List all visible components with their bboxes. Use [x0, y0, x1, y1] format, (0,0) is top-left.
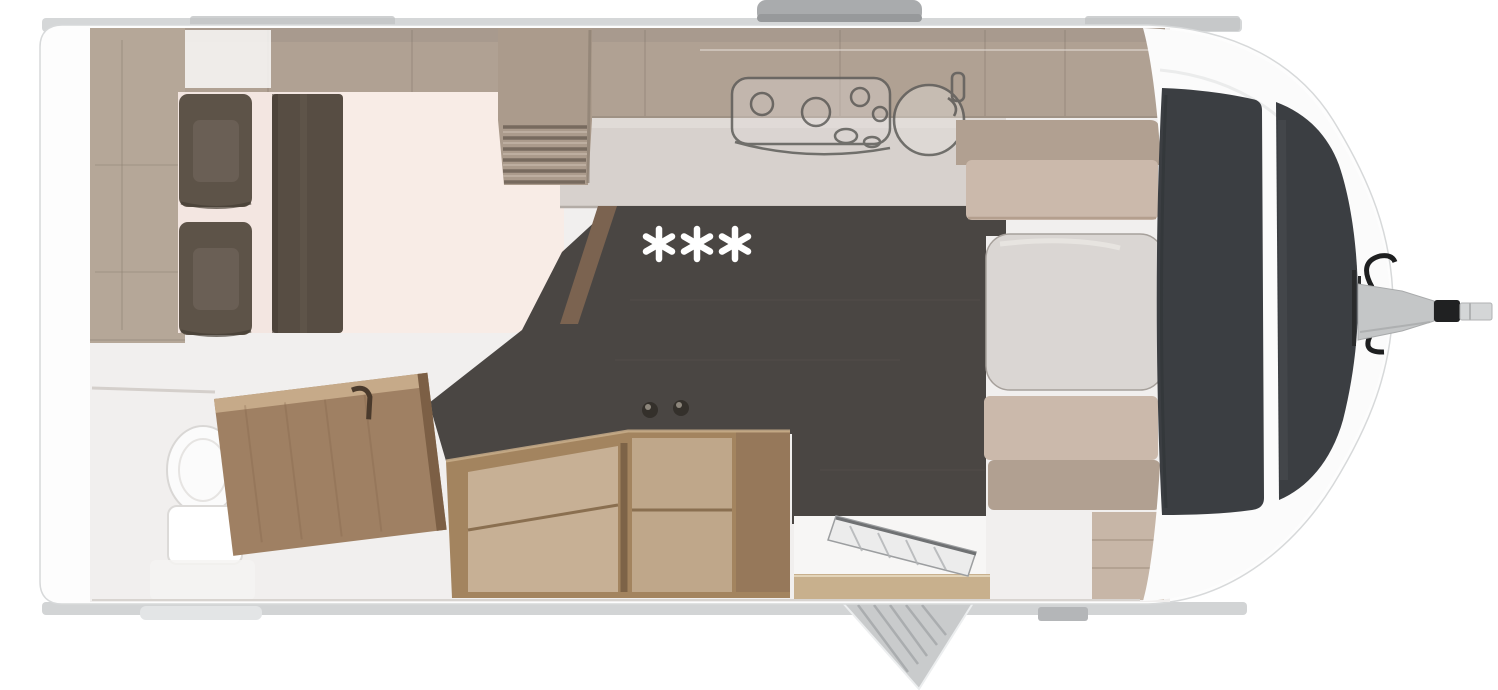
- hitch-bar-1: [1352, 270, 1356, 346]
- dinette-bench-top: [966, 160, 1158, 220]
- partition-drawers: [498, 28, 592, 185]
- caravan-floorplan: ***: [0, 0, 1498, 690]
- bumper-piece: [1038, 607, 1088, 621]
- bottom-skirt-tab: [140, 606, 262, 620]
- bathroom-door: [214, 373, 447, 556]
- dinette-bench-bottom: [984, 396, 1158, 460]
- bed-pillow-bottom: [179, 222, 252, 336]
- rear-wardrobe-column: [90, 28, 185, 343]
- dinette-backrest-top: [956, 120, 1160, 165]
- entry-doorway: [794, 516, 990, 600]
- stove-hob-icon: [732, 78, 890, 154]
- front-window-left: [1157, 88, 1264, 515]
- wardrobe-shelves: [446, 431, 790, 598]
- bed-pillow-top: [179, 94, 252, 208]
- bed-runner: [272, 94, 343, 333]
- dinette-table: [986, 234, 1164, 390]
- front-window-right-shade: [1282, 120, 1284, 480]
- hitch-coupling: [1434, 300, 1460, 322]
- hitch-jockey: [1460, 303, 1492, 320]
- entry-step: [843, 603, 973, 689]
- roof-vent-edge: [757, 14, 922, 22]
- floorplan-svg: [0, 0, 1498, 690]
- floor-marker-stars: [646, 229, 748, 259]
- dinette-backrest-bottom: [988, 460, 1160, 510]
